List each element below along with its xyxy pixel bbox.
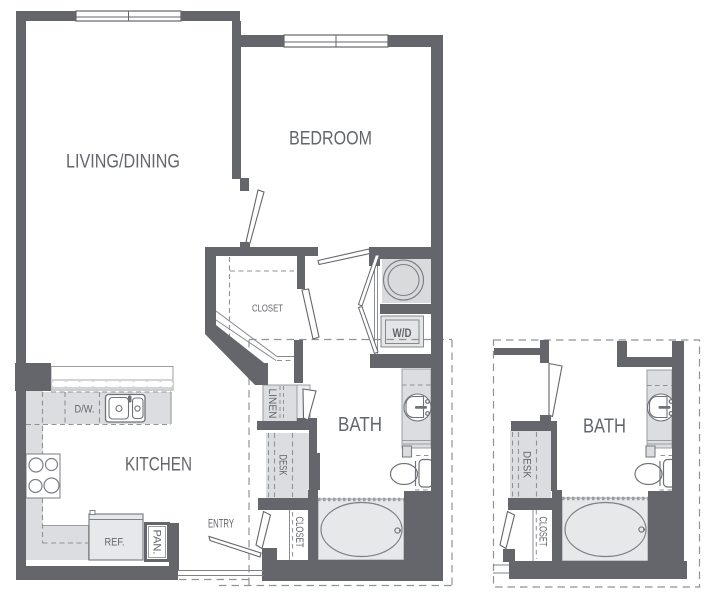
svg-text:BATH: BATH: [583, 415, 626, 438]
svg-text:D/W.: D/W.: [75, 404, 95, 416]
svg-text:DESK: DESK: [277, 455, 289, 476]
svg-text:CLOSET: CLOSET: [537, 517, 549, 547]
svg-text:BEDROOM: BEDROOM: [289, 129, 372, 150]
svg-text:DESK: DESK: [521, 451, 533, 479]
svg-text:CLOSET: CLOSET: [252, 303, 283, 315]
svg-text:W/D: W/D: [393, 328, 412, 340]
svg-text:PAN.: PAN.: [151, 530, 163, 555]
svg-text:BATH: BATH: [338, 413, 382, 436]
svg-text:LINEN: LINEN: [266, 389, 278, 419]
svg-text:CLOSET: CLOSET: [293, 517, 305, 548]
svg-text:REF.: REF.: [105, 537, 125, 549]
svg-text:ENTRY: ENTRY: [208, 519, 234, 531]
svg-text:LIVING/DINING: LIVING/DINING: [66, 151, 180, 173]
svg-text:KITCHEN: KITCHEN: [125, 455, 192, 476]
